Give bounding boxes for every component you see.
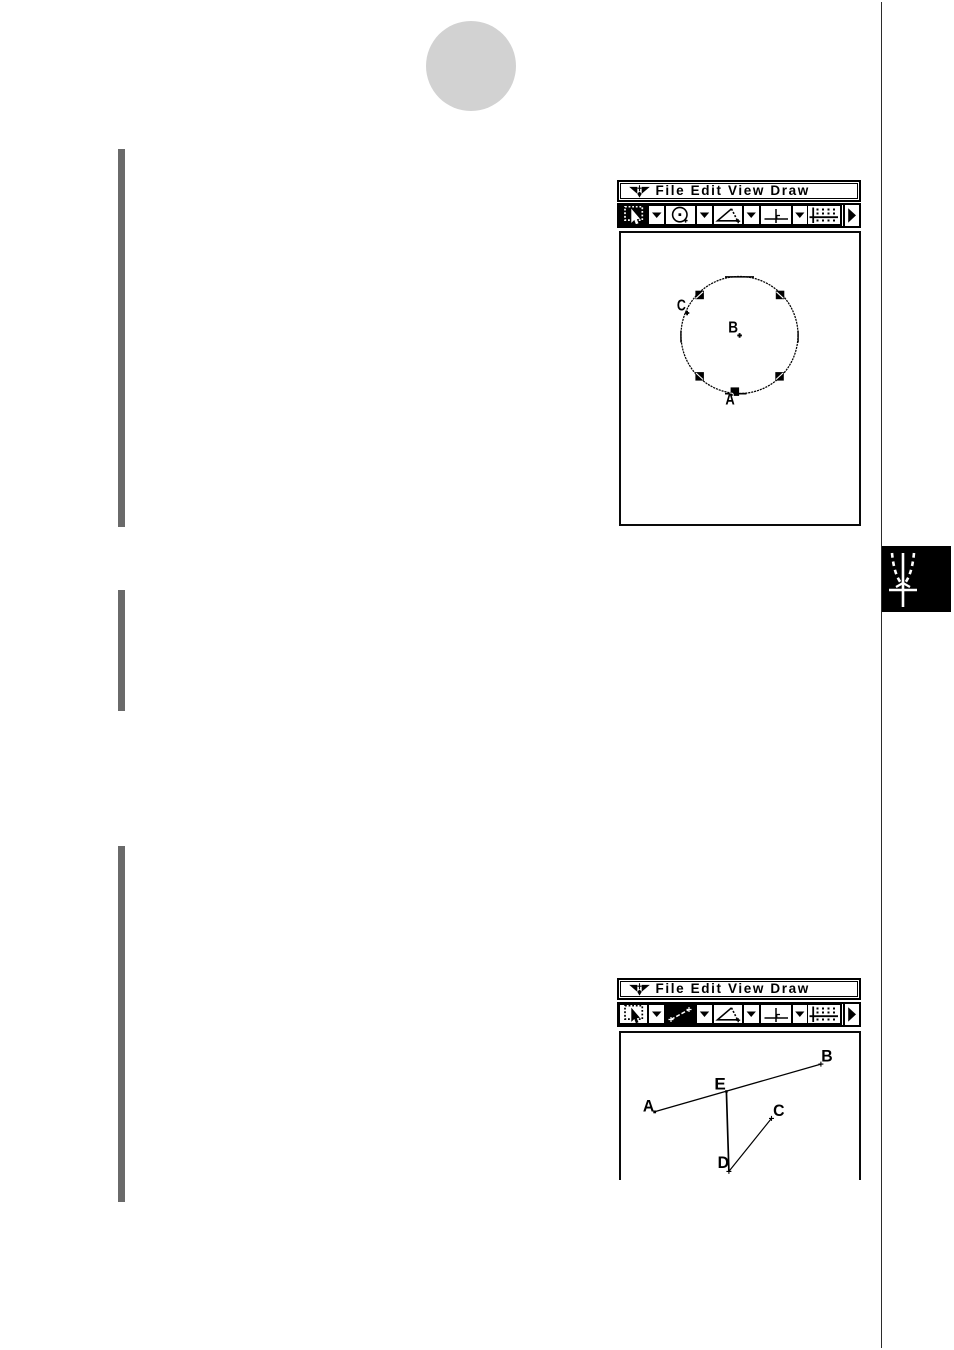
svg-text:D: D [717,1154,728,1172]
svg-text:A: A [725,391,734,408]
svg-text:A: A [642,1097,653,1115]
svg-text:B: B [728,319,738,336]
svg-text:C: C [773,1102,784,1120]
svg-text:E: E [714,1076,725,1094]
svg-text:C: C [676,298,685,315]
svg-text:B: B [821,1047,832,1065]
